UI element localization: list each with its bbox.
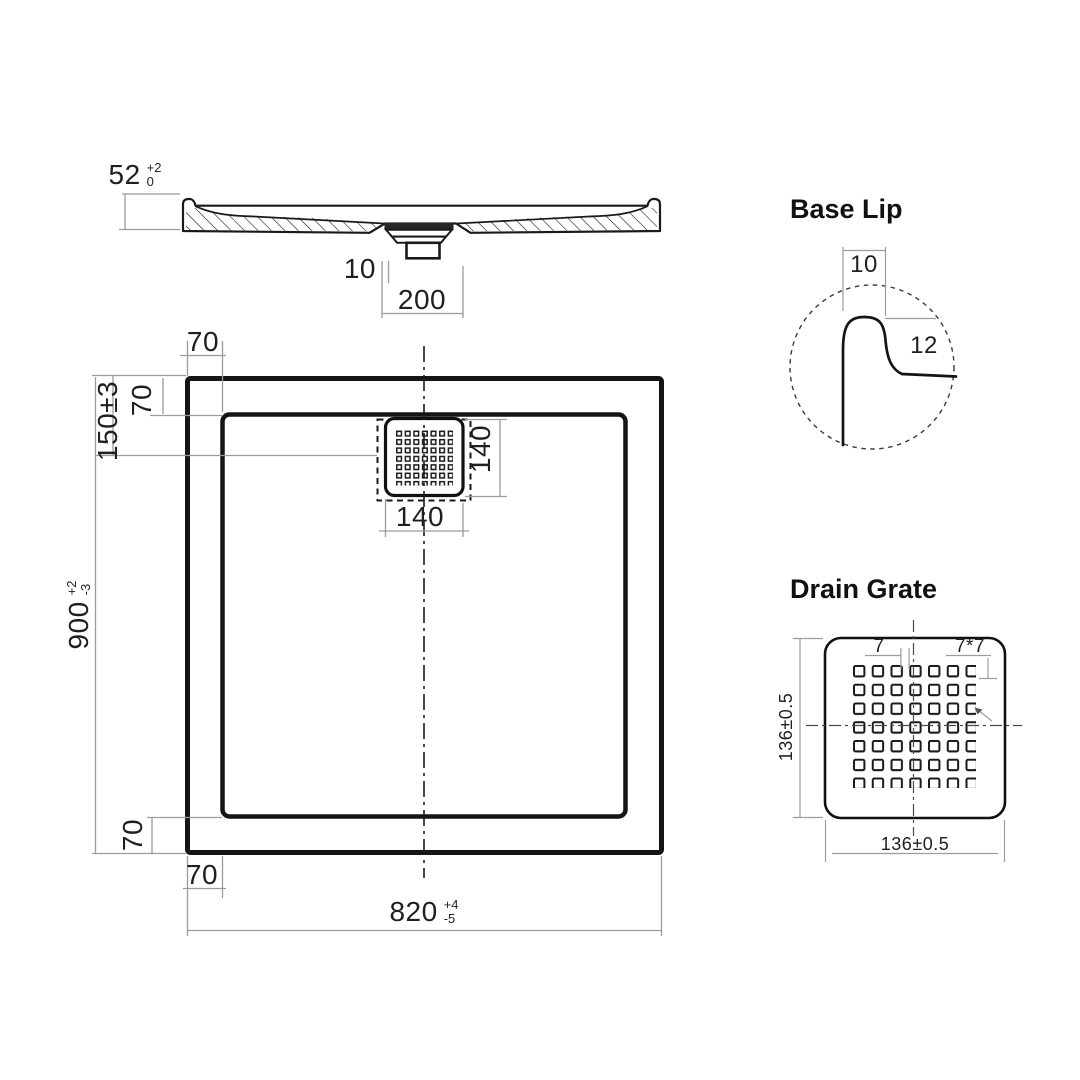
tolerance-stack: +2 0: [147, 161, 162, 188]
dim-plan-overall-width: 820 +4 -5: [369, 897, 479, 927]
dim-grate-detail-height: 136±0.5: [776, 687, 796, 767]
dim-section-drain-width: 200: [392, 285, 452, 315]
grate-holes: [853, 665, 976, 788]
dim-plan-left-wall: 70: [127, 375, 157, 425]
tolerance-stack: +4 -5: [444, 898, 459, 925]
dim-plan-drain-center: 150±3: [93, 379, 123, 463]
dim-grate-width: 140: [388, 502, 452, 532]
plan-view: [92, 341, 662, 936]
dim-grate-slot-size: 7*7: [945, 635, 995, 657]
dim-plan-bottom-wall: 70: [118, 810, 148, 860]
tolerance-stack: +2 -3: [65, 580, 92, 595]
detail-circle: [790, 285, 954, 449]
section-view-profile: [119, 194, 660, 318]
dim-plan-bottom-ledge: 70: [177, 860, 227, 890]
dim-grate-detail-width: 136±0.5: [870, 834, 960, 854]
dim-lip-width: 10: [844, 253, 884, 277]
dim-lip-height: 12: [904, 334, 944, 358]
technical-drawing-sheet: 52 +2 0 10 200 70 150±3 70 900 +2 -3 70 …: [0, 0, 1080, 1080]
dim-grate-slot-gap: 7: [864, 635, 894, 657]
dim-plan-top-wall: 70: [178, 327, 228, 357]
dim-grate-height: 140: [466, 417, 496, 481]
drain-grate-detail-title: Drain Grate: [790, 576, 937, 603]
dim-plan-overall-length: 900 +2 -3: [64, 560, 94, 670]
base-lip-detail-title: Base Lip: [790, 196, 903, 223]
dim-section-height: 52 +2 0: [100, 160, 170, 190]
section-drain-assembly: [385, 223, 454, 259]
dim-section-lip-offset: 10: [336, 254, 376, 284]
